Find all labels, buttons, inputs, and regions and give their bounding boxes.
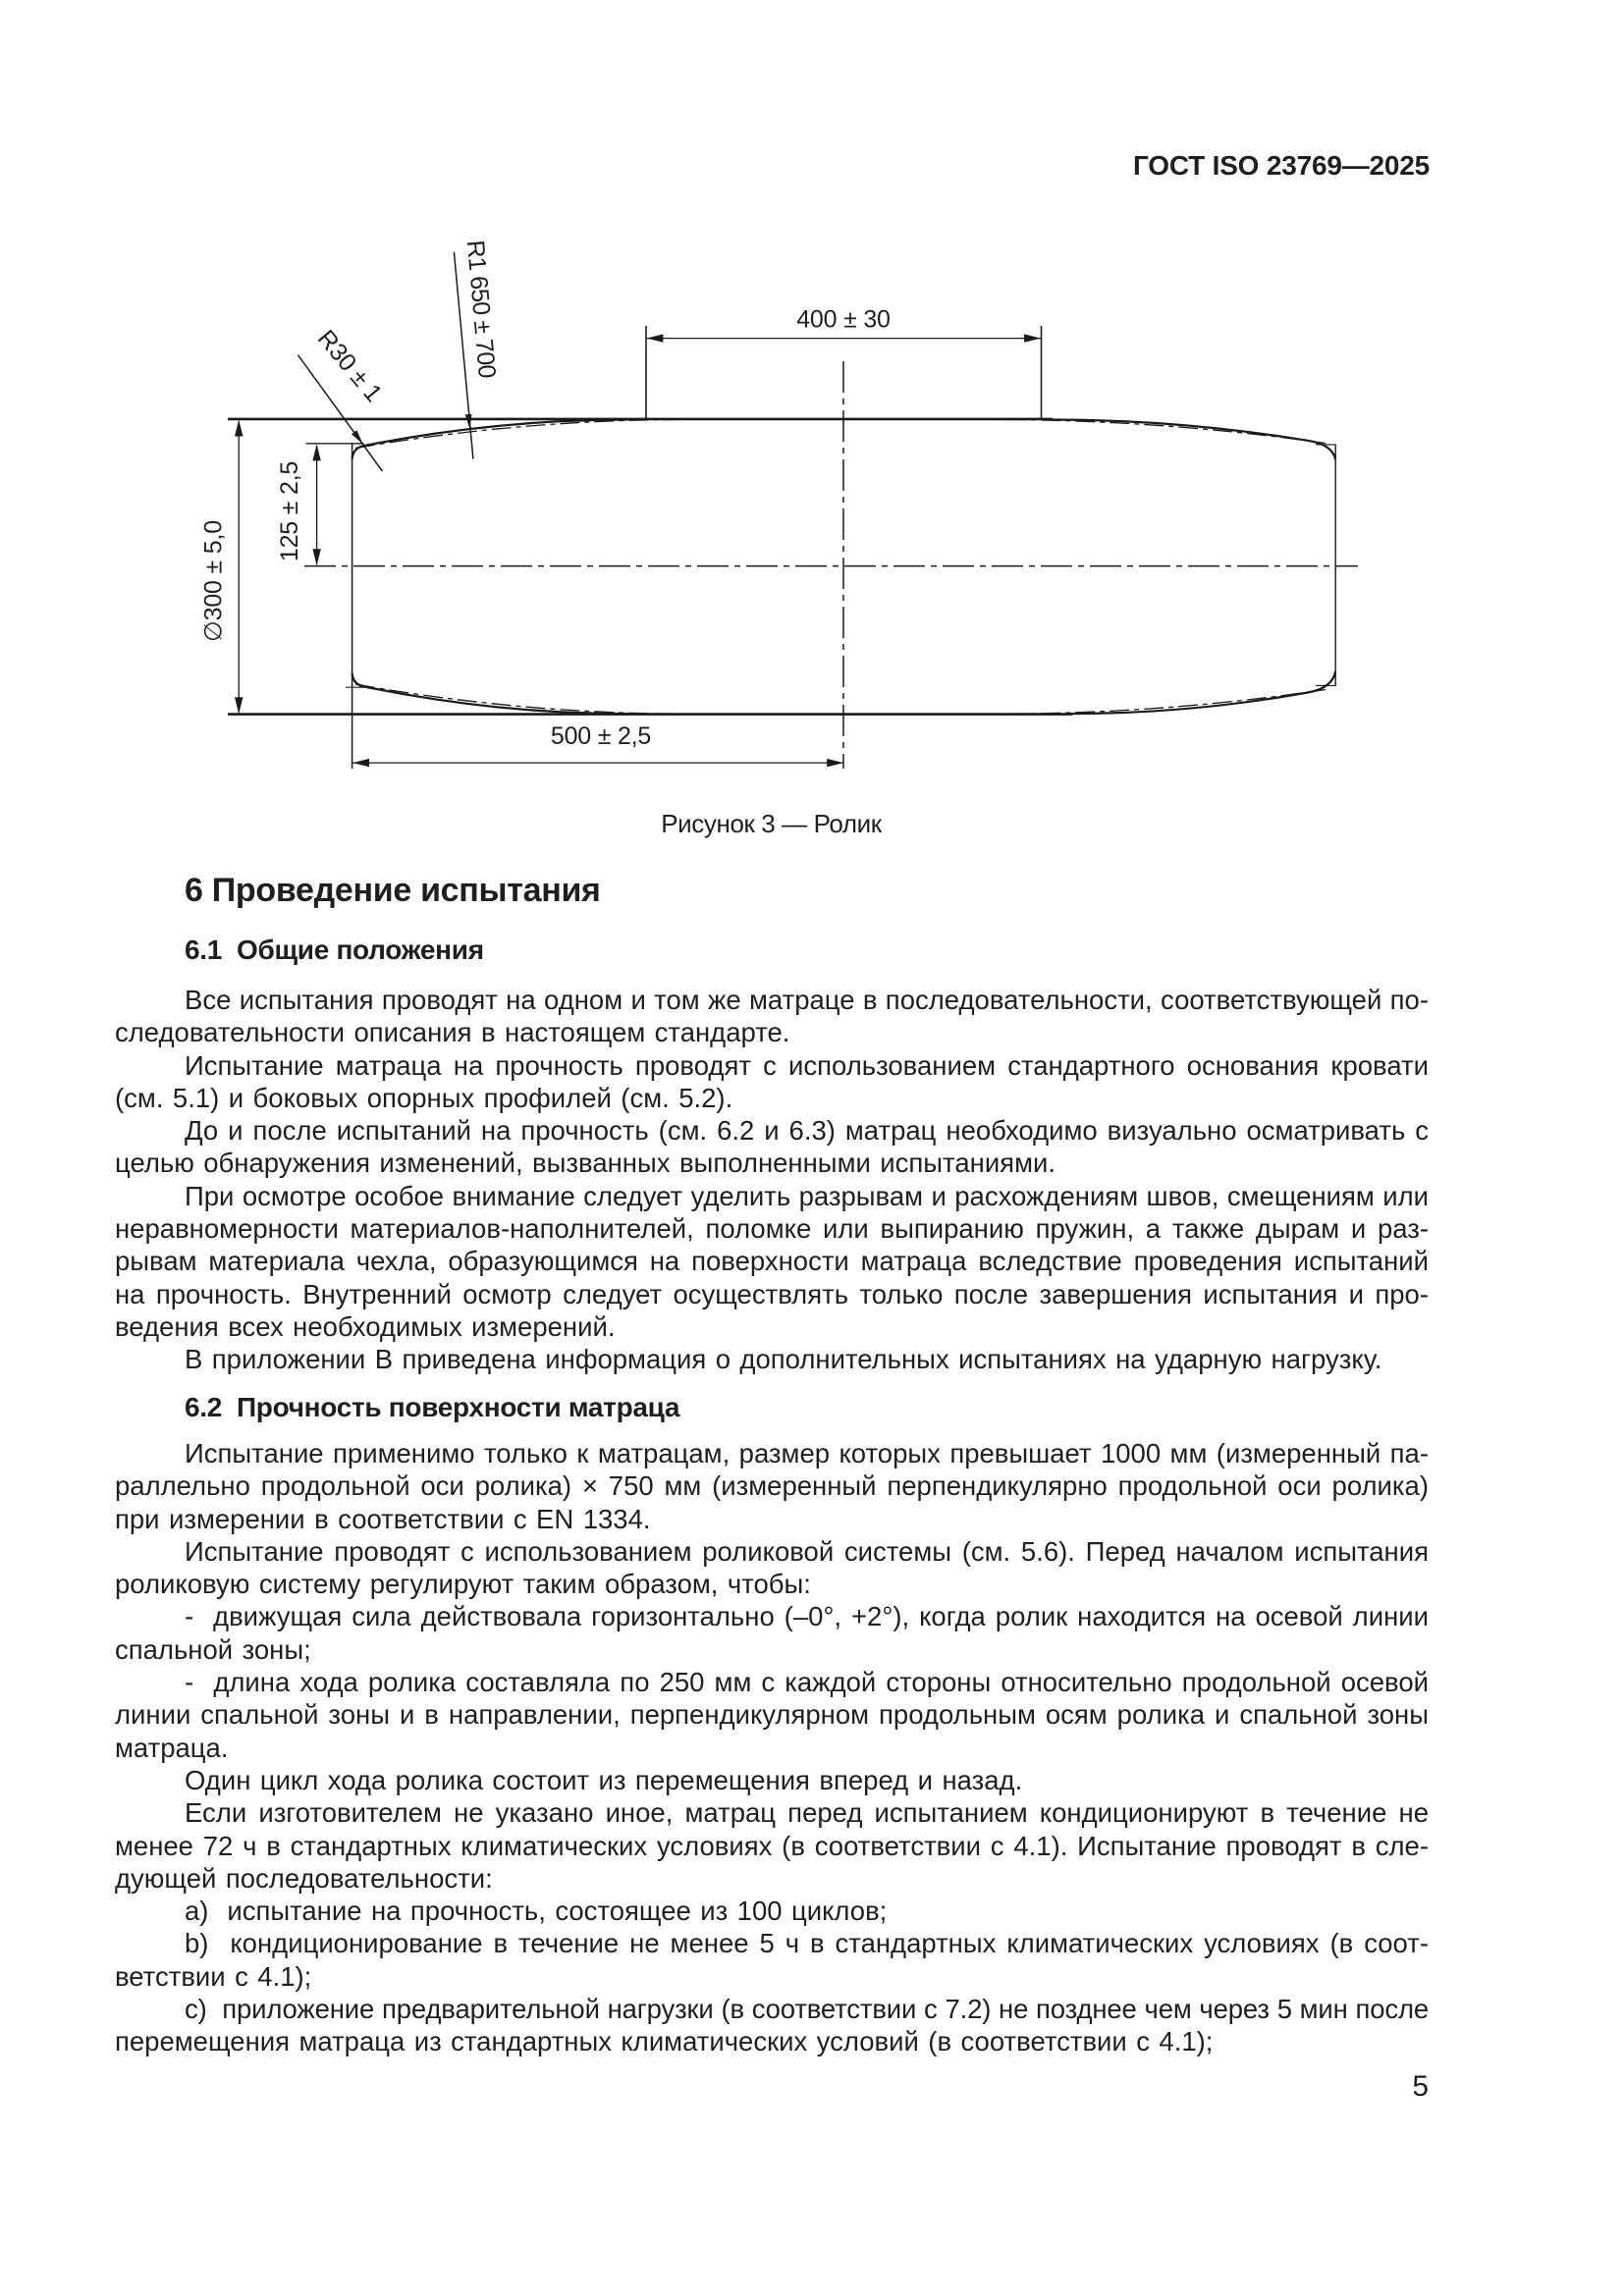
svg-text:∅300 ± 5,0: ∅300 ± 5,0 [200, 520, 228, 642]
svg-text:400 ± 30: 400 ± 30 [796, 306, 891, 334]
svg-text:125 ± 2,5: 125 ± 2,5 [276, 461, 303, 561]
svg-text:R1 650 ± 700: R1 650 ± 700 [461, 240, 501, 379]
svg-text:R30 ± 1: R30 ± 1 [312, 325, 388, 407]
svg-text:500 ± 2,5: 500 ± 2,5 [551, 722, 651, 750]
